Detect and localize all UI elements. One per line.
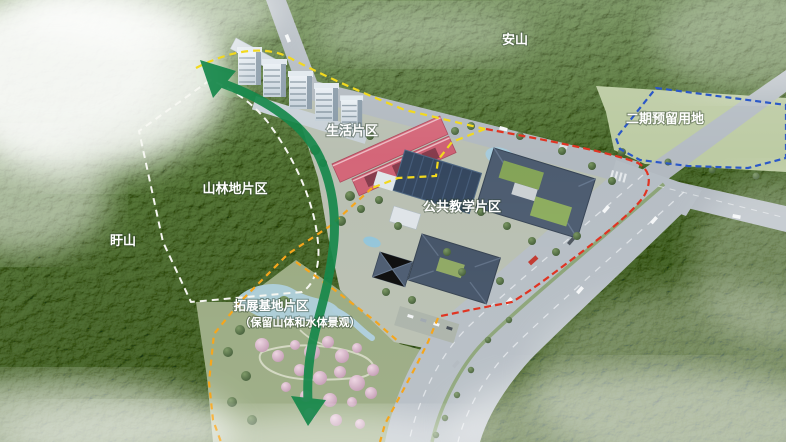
label-xushan: 盱山 [110, 233, 136, 248]
label-expansion-zone: 拓展基地片区 [233, 298, 309, 313]
label-teaching-zone: 公共教学片区 [423, 199, 501, 214]
masterplan-canvas: 安山 二期预留用地 生活片区 山林地片区 盱山 公共教学片区 拓展基地片区 （保… [0, 0, 786, 442]
label-living-zone: 生活片区 [326, 123, 378, 138]
label-expansion-note: （保留山体和水体景观） [240, 315, 361, 329]
aerial-masterplan-rendering: 安山 二期预留用地 生活片区 山林地片区 盱山 公共教学片区 拓展基地片区 （保… [0, 0, 786, 442]
label-anshan: 安山 [502, 32, 528, 47]
label-phase2-zone: 二期预留用地 [626, 111, 704, 126]
label-forest-zone: 山林地片区 [202, 181, 267, 196]
